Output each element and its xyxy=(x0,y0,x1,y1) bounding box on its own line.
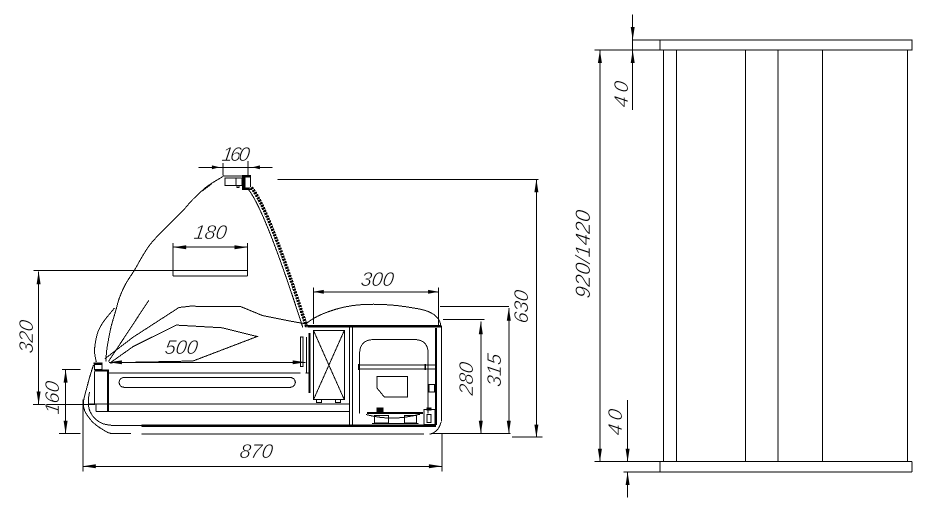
svg-text:630: 630 xyxy=(511,289,533,325)
svg-text:870: 870 xyxy=(238,441,274,463)
svg-text:300: 300 xyxy=(359,269,395,291)
svg-text:500: 500 xyxy=(163,337,199,359)
svg-text:280: 280 xyxy=(456,361,478,398)
svg-text:920/1420: 920/1420 xyxy=(572,208,595,299)
svg-text:160: 160 xyxy=(220,144,251,166)
svg-text:180: 180 xyxy=(192,222,228,244)
svg-text:320: 320 xyxy=(16,319,38,355)
svg-text:315: 315 xyxy=(484,351,506,388)
svg-text:160: 160 xyxy=(42,380,64,416)
